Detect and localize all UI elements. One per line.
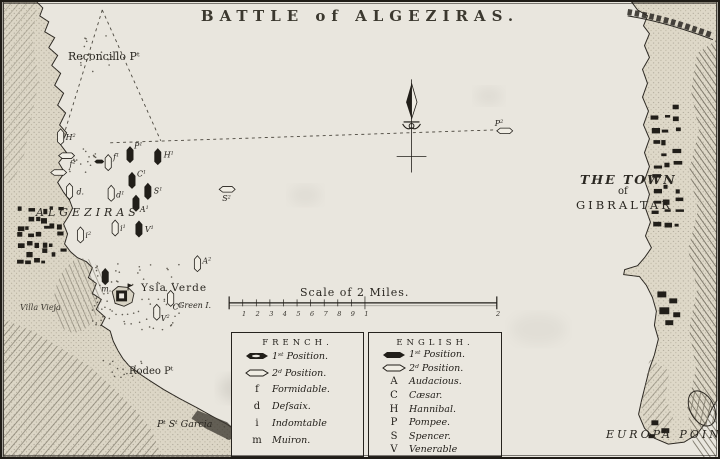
scale-tick-label: 8 (337, 310, 341, 318)
building-block (659, 307, 669, 314)
building-block (648, 434, 654, 438)
building-block (664, 163, 669, 168)
compass-north-needle (397, 79, 427, 172)
building-block (17, 232, 22, 237)
legend-row-spencer: S Spencer. (369, 430, 501, 444)
building-block (673, 116, 679, 121)
ship-marker-hannibal-2: H2 (58, 129, 76, 145)
legend-label: 2ᵈ Position. (272, 368, 326, 379)
ship-marker-audacious-2: A2 (194, 256, 211, 272)
building-block (57, 224, 62, 229)
building-block (35, 243, 39, 248)
map-canvas: H2f2d.f1P1H1C1d1S1A1i1V1S2m.A2C2V2i2P2 B… (0, 0, 720, 459)
building-block (673, 105, 679, 110)
ship-marker-boat (51, 170, 67, 176)
legend-row-french-1st: 1ˢᵗ Position. (232, 348, 363, 365)
scale-bar (229, 296, 497, 309)
building-block (49, 243, 53, 246)
svg-text:S2: S2 (222, 194, 231, 203)
building-block (676, 127, 681, 131)
gibraltar-coast (624, 2, 718, 457)
ship-1st-position-icon (242, 352, 272, 360)
ship-marker-dessaix-1: d1 (108, 185, 124, 201)
svg-text:V2: V2 (161, 314, 170, 323)
scale-tick-label: 3 (269, 310, 273, 318)
svg-text:A1: A1 (139, 205, 149, 214)
ship-2nd-position-icon (242, 369, 272, 377)
building-block (664, 185, 668, 189)
ship-key: f (242, 384, 272, 395)
ship-key: d (242, 401, 272, 412)
svg-text:V1: V1 (145, 225, 154, 234)
ship-marker-caesar-2: C2 (168, 290, 182, 311)
svg-text:H2: H2 (65, 133, 76, 142)
legend-row-venerable: V Venerable (369, 443, 501, 457)
legend-label: 2ᵈ Position. (409, 363, 463, 374)
ship-1st-position-icon (379, 351, 409, 359)
ship-key: H (379, 404, 409, 415)
scale-tick-label: 1 (364, 310, 368, 318)
ship-name: Spencer. (409, 431, 451, 442)
ship-key: S (379, 431, 409, 442)
ship-key: V (379, 444, 409, 455)
svg-text:i1: i1 (120, 224, 126, 233)
building-block (41, 218, 47, 223)
legend-row-english-2nd: 2ᵈ Position. (369, 362, 501, 376)
building-block (25, 226, 28, 230)
building-block (50, 206, 53, 209)
building-block (676, 198, 684, 202)
ship-marker-venerable-1: V1 (136, 221, 154, 237)
building-block (676, 209, 684, 212)
ship-key: P (379, 417, 409, 428)
scale-tick-label: 1 (242, 310, 246, 318)
ship-name: Venerable (409, 444, 457, 455)
building-block (60, 249, 66, 252)
building-block (25, 260, 31, 264)
building-block (661, 140, 665, 145)
building-block (28, 208, 35, 211)
svg-text:f1: f1 (112, 153, 119, 162)
building-block (663, 200, 670, 205)
svg-text:d1: d1 (116, 190, 124, 199)
building-block (661, 428, 669, 433)
bearing-lines (63, 10, 496, 143)
svg-text:C2: C2 (173, 302, 182, 311)
ship-name: Pompee. (409, 417, 450, 428)
legend-row-formidable: f Formidable. (232, 382, 363, 399)
building-block (18, 226, 25, 231)
scale-tick-label: 7 (324, 310, 328, 318)
scale-tick-label: 6 (310, 310, 314, 318)
building-block (665, 223, 672, 228)
ship-marker-caesar-1: C1 (129, 169, 146, 188)
building-block (672, 149, 681, 153)
scale-tick-label: 4 (283, 310, 287, 318)
scale-tick-label: 9 (351, 310, 355, 318)
legend-label: 1ˢᵗ Position. (272, 351, 328, 362)
legend-french-header: FRENCH. (232, 333, 363, 348)
building-block (49, 223, 54, 228)
legend-row-muiron: m Muiron. (232, 432, 363, 449)
ship-name: Cæsar. (409, 390, 442, 401)
building-block (654, 166, 662, 169)
ship-marker-muiron: m. (101, 269, 111, 294)
building-block (52, 252, 56, 256)
legend-row-pompee: P Pompee. (369, 416, 501, 430)
svg-text:S1: S1 (154, 186, 163, 195)
building-block (654, 189, 662, 193)
ship-key: m (242, 435, 272, 446)
svg-text:H1: H1 (163, 151, 174, 160)
building-block (665, 320, 673, 325)
ship-marker-dessaix-2: d. (66, 183, 84, 199)
svg-text:P2: P2 (494, 119, 503, 128)
ship-marker-indomptable-2: i2 (77, 227, 91, 243)
building-block (34, 258, 40, 262)
building-block (653, 222, 661, 227)
building-block (654, 201, 661, 204)
building-block (41, 261, 45, 264)
ship-name: Deſsaix. (272, 401, 311, 412)
scale-tick-label: 5 (296, 310, 300, 318)
building-block (651, 115, 659, 119)
ship-key: C (379, 390, 409, 401)
building-block (36, 217, 40, 221)
legend-row-english-1st: 1ˢᵗ Position. (369, 348, 501, 362)
ship-marker-spencer-2: S2 (219, 187, 235, 204)
building-block (36, 232, 41, 237)
svg-text:P1: P1 (133, 142, 143, 151)
building-block (42, 248, 47, 253)
building-block (27, 241, 32, 245)
legend-row-audacious: A Audacious. (369, 375, 501, 389)
legend-english: ENGLISH. 1ˢᵗ Position. 2ᵈ Position. A Au… (368, 332, 502, 457)
legend-french: FRENCH. 1ˢᵗ Position. 2ᵈ Position. f For… (231, 332, 364, 457)
building-block (17, 260, 24, 264)
ysla-verde-island (112, 284, 134, 307)
building-block (662, 130, 668, 133)
building-block (653, 140, 660, 144)
building-block (665, 115, 670, 118)
svg-text:i2: i2 (85, 231, 91, 240)
legend-row-hannibal: H Hannibal. (369, 402, 501, 416)
ship-marker-hannibal-1: H1 (155, 149, 174, 165)
legend-english-header: ENGLISH. (369, 333, 501, 348)
ship-2nd-position-icon (379, 364, 409, 372)
scale-end-label: 2 (496, 310, 500, 318)
ship-name: Indomtable (272, 418, 327, 429)
svg-text:d.: d. (76, 187, 84, 196)
ship-marker-pompee-2: P2 (494, 119, 513, 134)
building-block (669, 298, 677, 303)
building-block (676, 189, 680, 193)
building-block (652, 211, 659, 214)
building-block (675, 224, 679, 227)
ship-name: Muiron. (272, 435, 310, 446)
building-block (26, 252, 32, 257)
building-block (665, 209, 671, 212)
building-block (652, 128, 660, 133)
legend-row-dessaix: d Deſsaix. (232, 398, 363, 415)
building-block (43, 243, 47, 248)
ship-marker-indomptable-1: i1 (112, 220, 126, 236)
ship-marker-pompee-1: P1 (127, 142, 143, 163)
ship-name: Formidable. (272, 384, 330, 395)
ship-key: A (379, 376, 409, 387)
ship-name: Hannibal. (409, 404, 456, 415)
legend-label: 1ˢᵗ Position. (409, 349, 465, 360)
building-block (661, 153, 666, 156)
legend-row-french-2nd: 2ᵈ Position. (232, 365, 363, 382)
legend-row-caesar: C Cæsar. (369, 389, 501, 403)
building-block (57, 232, 63, 236)
building-block (28, 234, 34, 238)
svg-text:m.: m. (101, 284, 111, 293)
building-block (651, 420, 658, 425)
ship-name: Audacious. (409, 376, 462, 387)
building-block (652, 174, 661, 177)
building-block (29, 217, 35, 222)
building-block (58, 207, 63, 210)
ship-key: i (242, 418, 272, 429)
scale-tick-label: 2 (256, 310, 260, 318)
building-block (18, 243, 25, 248)
svg-text:f2: f2 (69, 160, 76, 169)
svg-text:A2: A2 (201, 257, 211, 266)
svg-text:C1: C1 (137, 169, 146, 178)
ship-marker-formidable-1: f1 (105, 153, 119, 171)
building-block (43, 209, 47, 214)
ship-marker-venerable-2: V2 (154, 304, 170, 323)
building-block (674, 161, 683, 165)
ship-marker-spencer-1: S1 (145, 183, 163, 199)
ship-marker-gunboat (95, 160, 104, 163)
building-block (673, 312, 680, 317)
building-block (18, 206, 22, 210)
building-block (657, 291, 666, 297)
legend-row-indomptable: i Indomtable (232, 415, 363, 432)
